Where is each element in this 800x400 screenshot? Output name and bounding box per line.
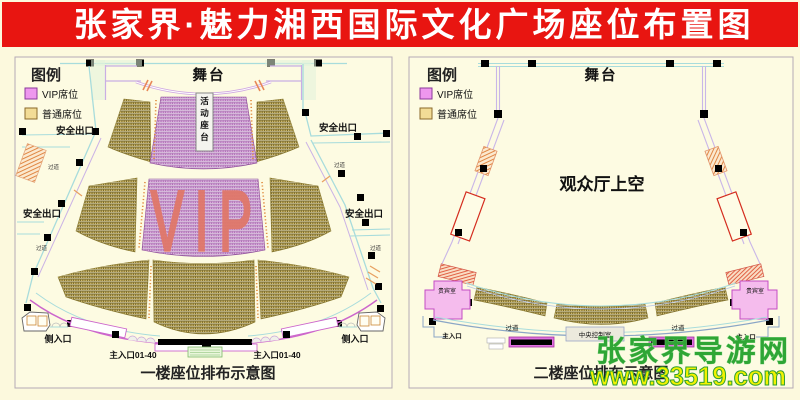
svg-text:贵宾室: 贵宾室 [438, 287, 456, 295]
svg-text:过道: 过道 [672, 323, 686, 332]
svg-text:主入口01-40: 主入口01-40 [109, 350, 157, 360]
svg-text:活: 活 [200, 96, 209, 106]
svg-text:安全出口: 安全出口 [23, 208, 61, 220]
svg-text:舞台: 舞台 [585, 66, 618, 84]
svg-text:观众厅上空: 观众厅上空 [559, 174, 645, 194]
svg-text:图例: 图例 [31, 66, 61, 84]
svg-text:www.33519.com: www.33519.com [589, 363, 786, 391]
svg-text:座: 座 [199, 120, 209, 130]
svg-text:安全出口: 安全出口 [345, 208, 383, 220]
svg-text:普通席位: 普通席位 [437, 108, 477, 121]
svg-text:VIP席位: VIP席位 [42, 88, 78, 101]
svg-text:主入口01-40: 主入口01-40 [253, 350, 301, 360]
svg-text:VIP席位: VIP席位 [437, 88, 473, 101]
svg-text:普通席位: 普通席位 [42, 108, 82, 121]
svg-text:过道: 过道 [370, 244, 382, 252]
svg-text:张家界·魅力湘西国际文化广场座位布置图: 张家界·魅力湘西国际文化广场座位布置图 [74, 6, 755, 43]
svg-text:过道: 过道 [48, 163, 60, 171]
svg-text:一楼座位排布示意图: 一楼座位排布示意图 [140, 364, 275, 382]
svg-text:安全出口: 安全出口 [319, 122, 357, 134]
svg-text:安全出口: 安全出口 [56, 125, 94, 137]
svg-text:过道: 过道 [334, 161, 346, 169]
svg-text:VIP: VIP [151, 174, 263, 268]
svg-text:图例: 图例 [427, 66, 457, 84]
svg-text:主入口: 主入口 [442, 331, 462, 340]
svg-text:动: 动 [200, 108, 209, 118]
svg-text:侧入口: 侧入口 [44, 333, 71, 344]
svg-text:侧入口: 侧入口 [341, 333, 368, 344]
svg-text:舞台: 舞台 [193, 66, 226, 84]
svg-text:过道: 过道 [36, 244, 48, 252]
svg-text:台: 台 [200, 132, 209, 142]
svg-text:过道: 过道 [506, 323, 520, 332]
svg-text:贵宾室: 贵宾室 [746, 287, 764, 295]
